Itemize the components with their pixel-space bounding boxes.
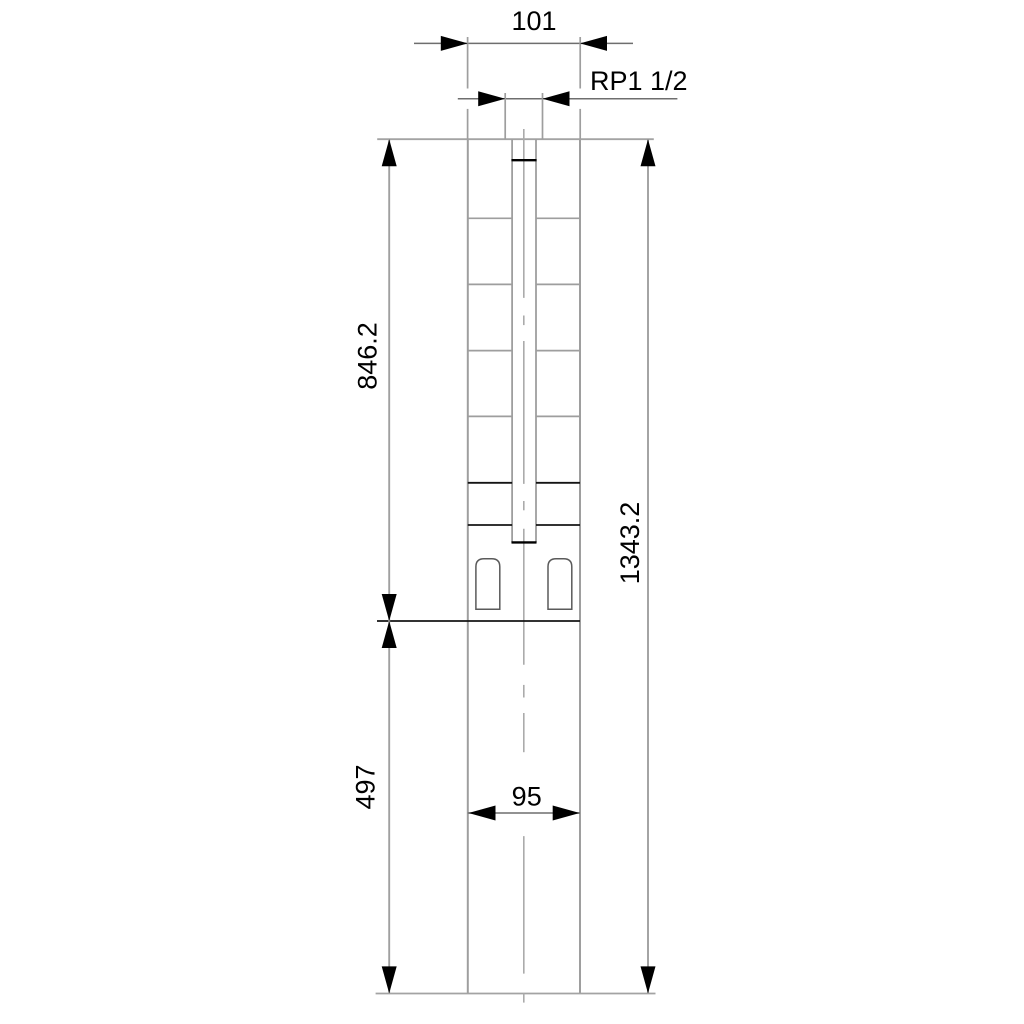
svg-text:846.2: 846.2 <box>353 322 383 390</box>
svg-text:497: 497 <box>351 764 381 809</box>
svg-text:1343.2: 1343.2 <box>615 502 645 585</box>
svg-text:RP1 1/2: RP1 1/2 <box>590 66 688 96</box>
svg-text:95: 95 <box>512 782 542 812</box>
svg-text:101: 101 <box>511 6 556 36</box>
